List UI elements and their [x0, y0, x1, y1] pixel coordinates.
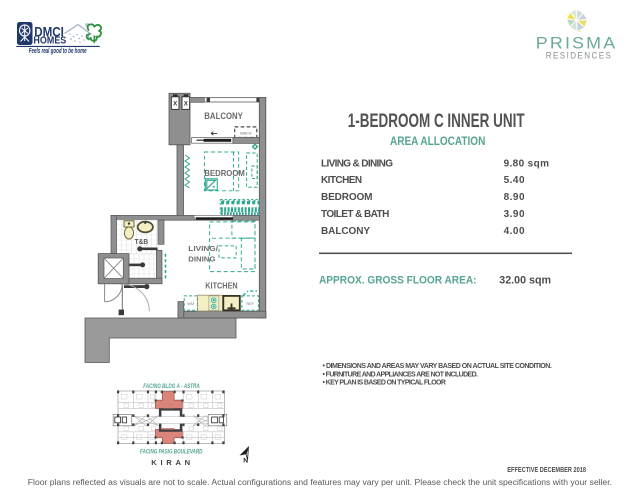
svg-text:KITCHEN: KITCHEN [205, 281, 238, 290]
svg-text:32.00 sqm: 32.00 sqm [499, 275, 551, 287]
svg-text:HOMES: HOMES [33, 35, 66, 47]
svg-text:BEDROOM: BEDROOM [321, 192, 373, 203]
svg-text:Floor plans reflected as visua: Floor plans reflected as visuals are not… [28, 478, 612, 487]
svg-text:N: N [243, 458, 248, 465]
svg-text:TOILET & BATH: TOILET & BATH [321, 209, 389, 220]
svg-text:BEDROOM: BEDROOM [204, 169, 244, 178]
svg-text:RESIDENCES: RESIDENCES [546, 50, 613, 60]
svg-text:KIRAN: KIRAN [151, 458, 194, 467]
svg-text:REF: REF [246, 302, 254, 306]
svg-text:KITCHEN: KITCHEN [321, 175, 362, 186]
svg-text:WM: WM [187, 302, 194, 306]
svg-text:LIVING/: LIVING/ [188, 244, 219, 253]
svg-text:BALCONY: BALCONY [204, 111, 243, 121]
svg-text:FACING PASIG BOULEVARD: FACING PASIG BOULEVARD [140, 449, 203, 456]
svg-text:• FURNITURE AND APPLIANCES ARE: • FURNITURE AND APPLIANCES ARE NOT INCLU… [323, 372, 479, 379]
svg-text:• KEY PLAN IS BASED ON TYPICAL: • KEY PLAN IS BASED ON TYPICAL FLOOR [323, 380, 446, 387]
svg-text:Feels real good to be home: Feels real good to be home [29, 46, 87, 55]
svg-text:APPROX. GROSS FLOOR AREA:: APPROX. GROSS FLOOR AREA: [319, 275, 477, 287]
svg-text:3.90: 3.90 [504, 209, 525, 220]
svg-text:1-BEDROOM C INNER UNIT: 1-BEDROOM C INNER UNIT [348, 110, 525, 132]
svg-text:4.00: 4.00 [504, 226, 525, 237]
svg-text:FACING BLDG A - ASTRA: FACING BLDG A - ASTRA [143, 383, 200, 390]
svg-text:EFFECTIVE DECEMBER 2018: EFFECTIVE DECEMBER 2018 [507, 467, 586, 474]
svg-text:DINING: DINING [188, 255, 215, 264]
svg-text:• DIMENSIONS AND AREAS MAY VAR: • DIMENSIONS AND AREAS MAY VARY BASED ON… [323, 363, 552, 370]
svg-text:AREA ALLOCATION: AREA ALLOCATION [390, 134, 485, 148]
svg-text:9.80 sqm: 9.80 sqm [504, 159, 549, 170]
svg-text:WACH: WACH [240, 131, 252, 135]
svg-text:8.90: 8.90 [504, 192, 525, 203]
svg-text:T&B: T&B [135, 237, 149, 246]
svg-text:BALCONY: BALCONY [321, 226, 370, 237]
svg-text:LIVING & DINING: LIVING & DINING [321, 159, 393, 170]
svg-text:5.40: 5.40 [504, 175, 525, 186]
